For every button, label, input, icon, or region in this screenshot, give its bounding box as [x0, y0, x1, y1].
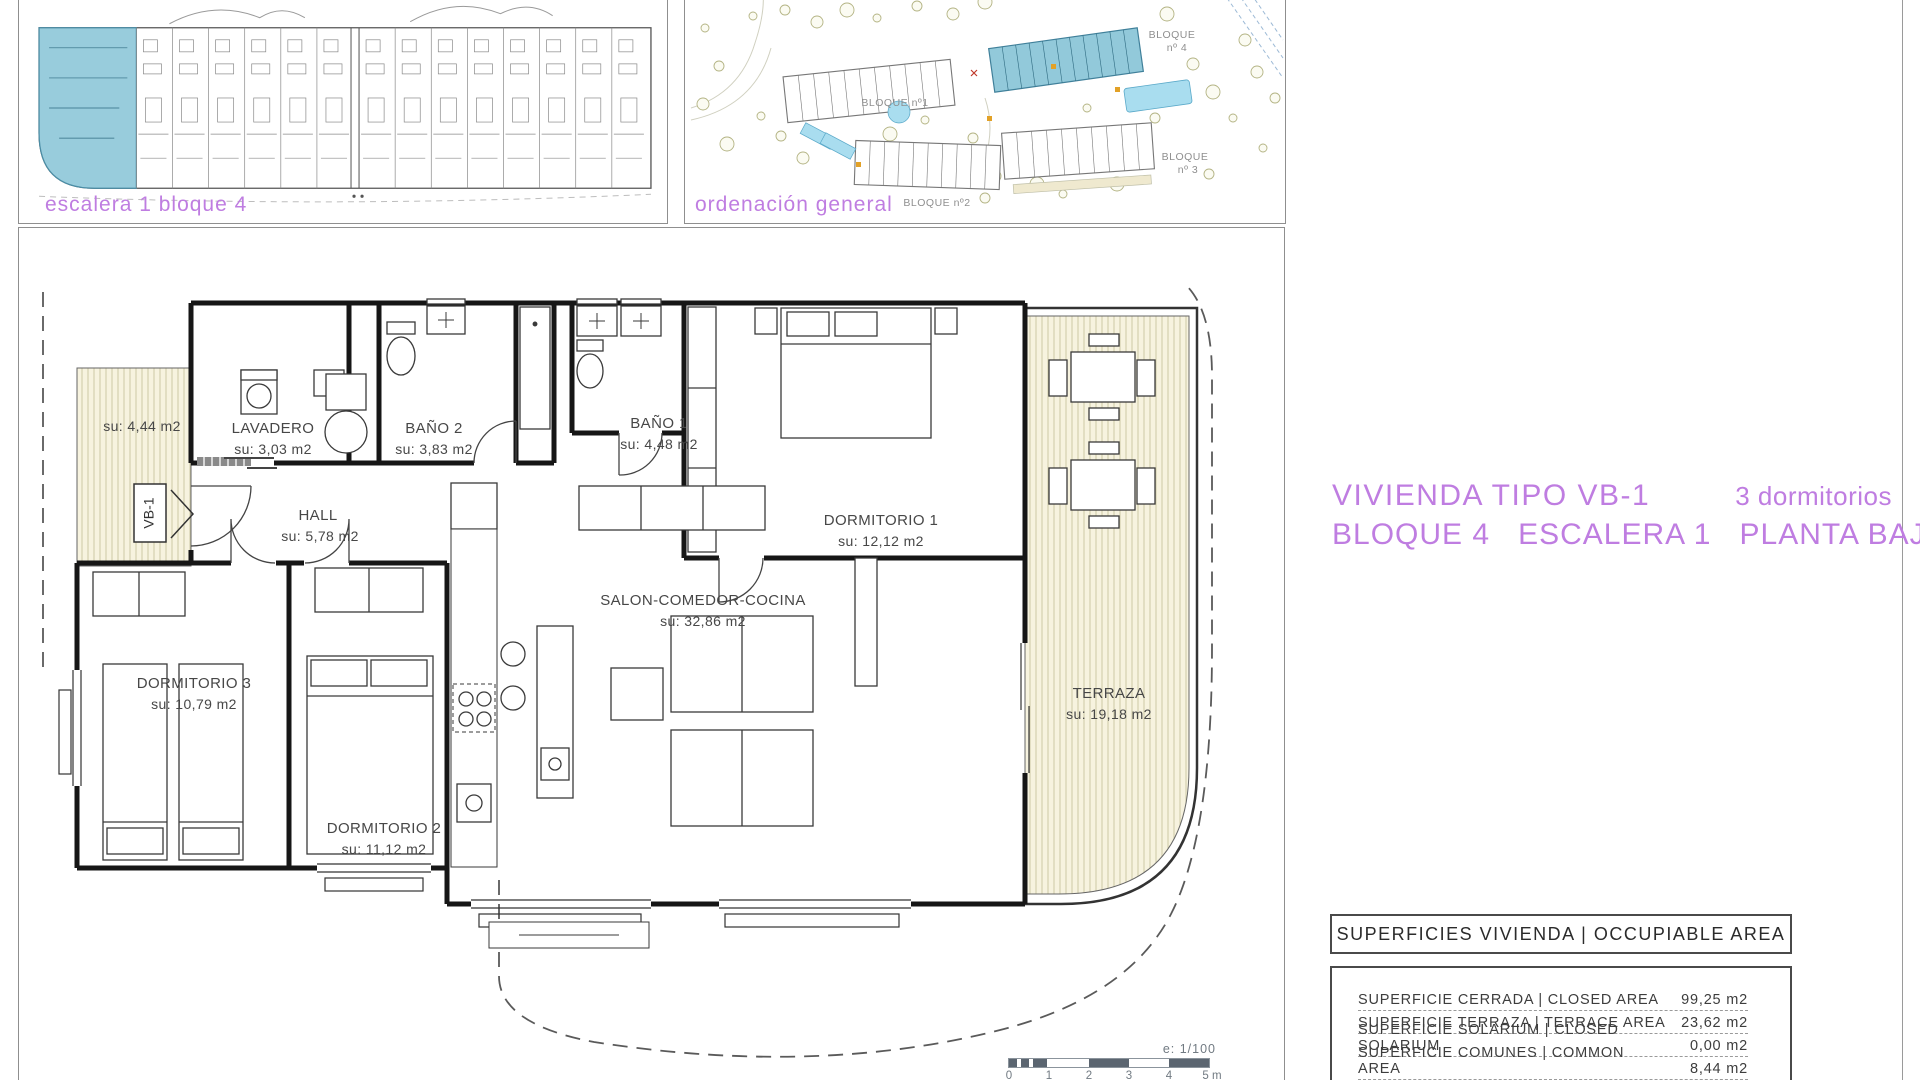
highlighted-block-4: [989, 28, 1144, 92]
site-plan-panel: BLOQUE nº1 BLOQUE nº2 BLOQUE nº 3 BLOQUE…: [684, 0, 1286, 224]
table-row-common-area: SUPERFICIE COMUNES | COMMON AREA 8,44 m2: [1358, 1057, 1748, 1080]
block-label-2: BLOQUE nº2: [903, 197, 970, 209]
block-label-1: BLOQUE nº1: [861, 97, 928, 109]
entry-mat: [197, 457, 277, 468]
terraza-region: [924, 308, 1197, 904]
room-label-salon: SALON-COMEDOR-COCINA: [600, 592, 806, 609]
svg-text:su: 4,48 m2: su: 4,48 m2: [620, 436, 698, 452]
svg-text:su: 3,03 m2: su: 3,03 m2: [234, 441, 312, 457]
room-label-dormitorio2: DORMITORIO 2: [327, 820, 442, 837]
site-plan-label: ordenación general: [695, 193, 893, 217]
key-plan-drawing: [19, 0, 667, 223]
floor-plan-panel: VB-1 su: 4,44 m2 LAVADERO su: 3,03 m2 BA…: [18, 227, 1285, 1080]
room-label-bano2: BAÑO 2: [405, 420, 462, 437]
svg-text:su: 5,78 m2: su: 5,78 m2: [281, 528, 359, 544]
svg-text:su: 32,86 m2: su: 32,86 m2: [660, 613, 746, 629]
dwelling-type-title: VIVIENDA TIPO VB-1: [1332, 479, 1650, 513]
areas-table-header: SUPERFICIES VIVIENDA | OCCUPIABLE AREA: [1330, 914, 1792, 954]
bedrooms-count-label: 3 dormitorios: [1735, 481, 1892, 512]
block-label-4b: nº 4: [1167, 42, 1187, 54]
room-labels: su: 4,44 m2 LAVADERO su: 3,03 m2 BAÑO 2 …: [103, 415, 1152, 857]
svg-text:su: 11,12 m2: su: 11,12 m2: [342, 841, 427, 857]
plan-sheet: escalera 1 bloque 4: [0, 0, 1920, 1080]
room-label-dormitorio1: DORMITORIO 1: [824, 512, 939, 529]
svg-text:su: 12,12 m2: su: 12,12 m2: [838, 533, 924, 549]
scale-ratio-label: e: 1/100: [1163, 1042, 1216, 1056]
title-block: VIVIENDA TIPO VB-1 3 dormitorios BLOQUE …: [1332, 479, 1892, 552]
scale-bar-graphic: [1008, 1058, 1210, 1068]
block-stair-floor-title: BLOQUE 4 ESCALERA 1 PLANTA BAJA: [1332, 518, 1892, 552]
room-label-lavadero: LAVADERO: [232, 420, 315, 437]
site-plan-drawing: BLOQUE nº1 BLOQUE nº2 BLOQUE nº 3 BLOQUE…: [685, 0, 1285, 223]
floor-plan-drawing: VB-1 su: 4,44 m2 LAVADERO su: 3,03 m2 BA…: [19, 228, 1284, 1080]
entry-marker-text: VB-1: [141, 497, 157, 528]
areas-table: SUPERFICIE CERRADA | CLOSED AREA 99,25 m…: [1330, 966, 1792, 1080]
table-row-closed-area: SUPERFICIE CERRADA | CLOSED AREA 99,25 m…: [1358, 988, 1748, 1011]
svg-text:su: 10,79 m2: su: 10,79 m2: [151, 696, 237, 712]
block-label-3a: BLOQUE: [1162, 151, 1209, 163]
svg-text:su: 3,83 m2: su: 3,83 m2: [395, 441, 473, 457]
block-label-3b: nº 3: [1178, 164, 1198, 176]
room-label-terraza: TERRAZA: [1073, 685, 1146, 702]
svg-text:su: 19,18 m2: su: 19,18 m2: [1066, 706, 1152, 722]
block-label-4a: BLOQUE: [1149, 29, 1196, 41]
furniture: [93, 299, 1155, 948]
scale-bar: e: 1/100 0 1 2 3 4 5 m: [1008, 1042, 1228, 1080]
room-label-hall: HALL: [298, 507, 337, 524]
key-plan-panel: escalera 1 bloque 4: [18, 0, 668, 224]
room-label-dormitorio3: DORMITORIO 3: [137, 675, 252, 692]
key-plan-label: escalera 1 bloque 4: [45, 193, 247, 217]
room-label-bano1: BAÑO 1: [630, 415, 687, 432]
entry-terrace-area-label: su: 4,44 m2: [103, 418, 181, 434]
